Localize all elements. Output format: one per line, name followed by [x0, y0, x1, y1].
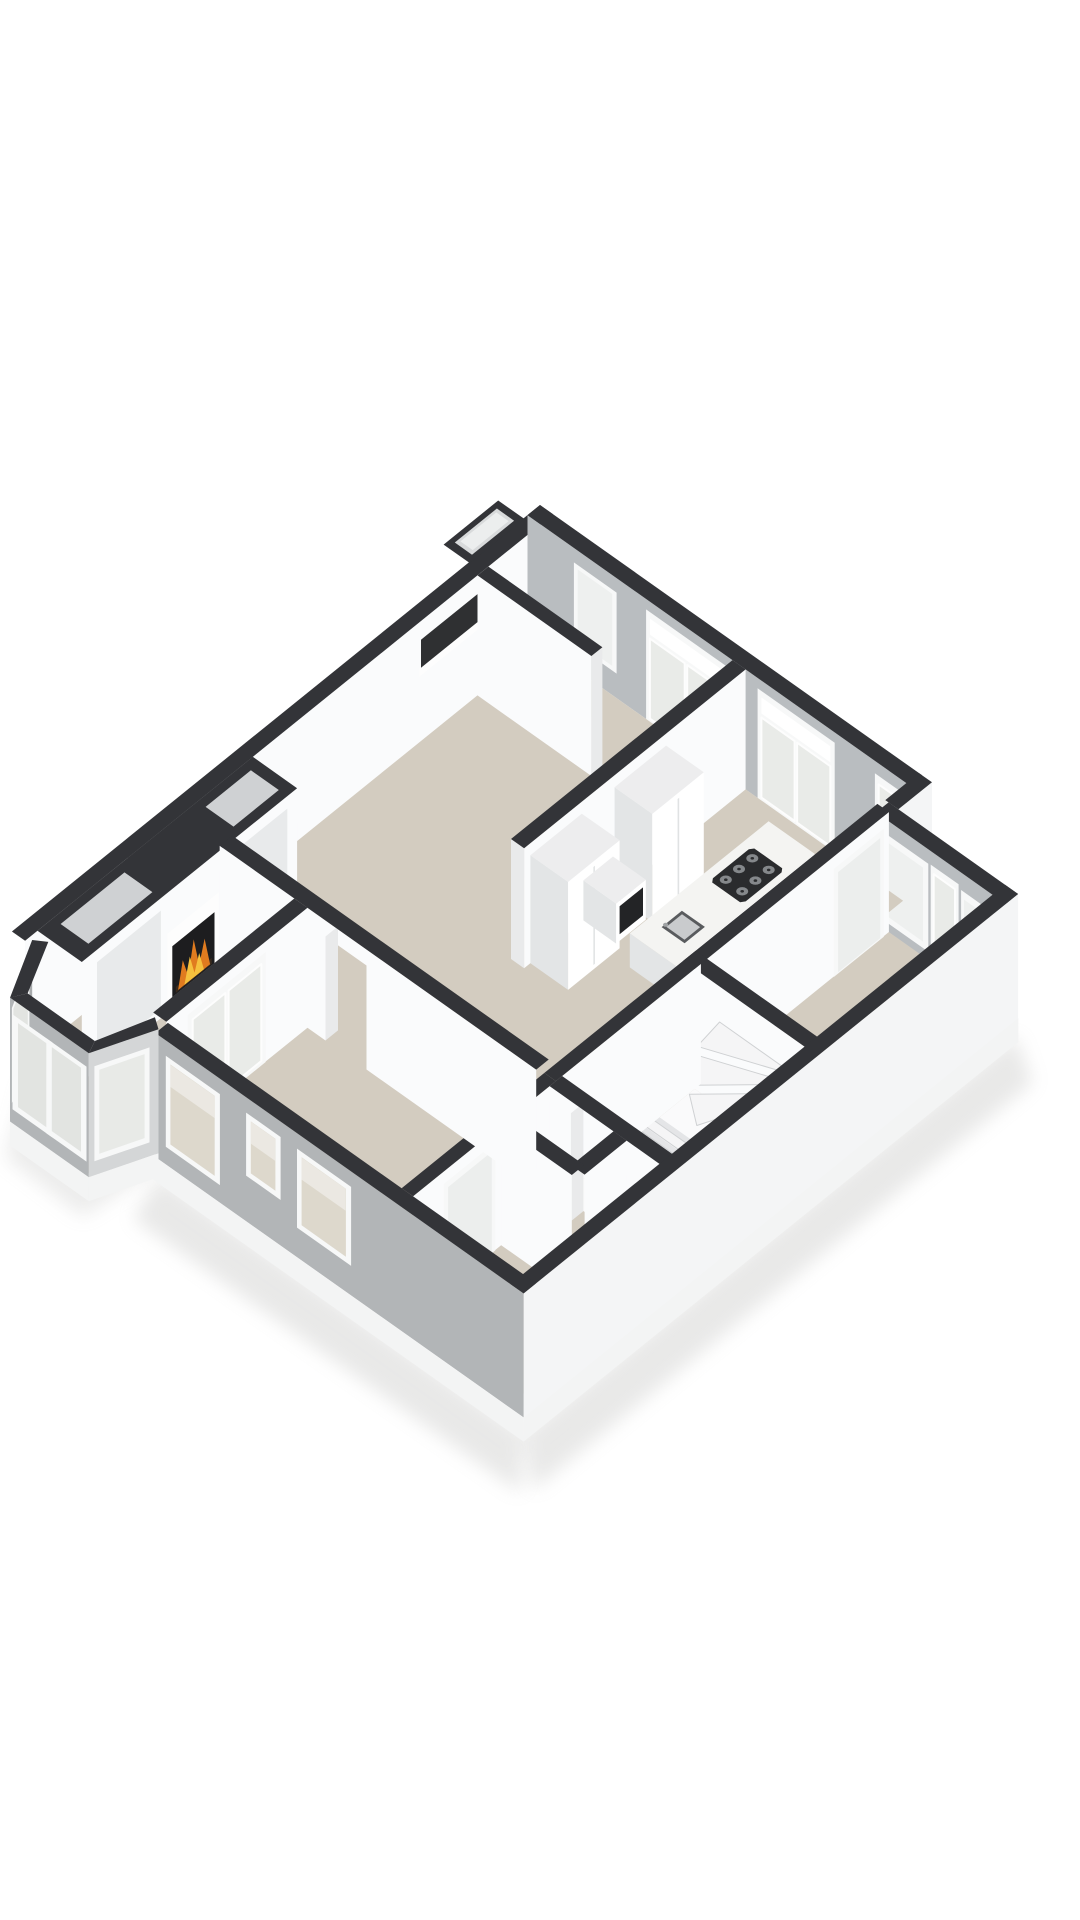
burner-center — [737, 868, 741, 871]
kl-wall-end-cap — [511, 839, 524, 968]
cabinet-1-door-gap — [678, 798, 680, 897]
stub-end-cap — [591, 647, 602, 776]
burner-center — [740, 890, 744, 893]
ld-opening-jamb — [326, 926, 339, 1040]
floorplan-3d-view — [0, 0, 1080, 1920]
sink-faucet — [663, 923, 668, 927]
burner-center — [724, 878, 728, 881]
burner-center — [751, 857, 755, 860]
burner-center — [754, 879, 758, 882]
floorplan-canvas — [0, 0, 1080, 1920]
burner-center — [767, 869, 771, 872]
bay-window-right-glass — [99, 1054, 144, 1154]
